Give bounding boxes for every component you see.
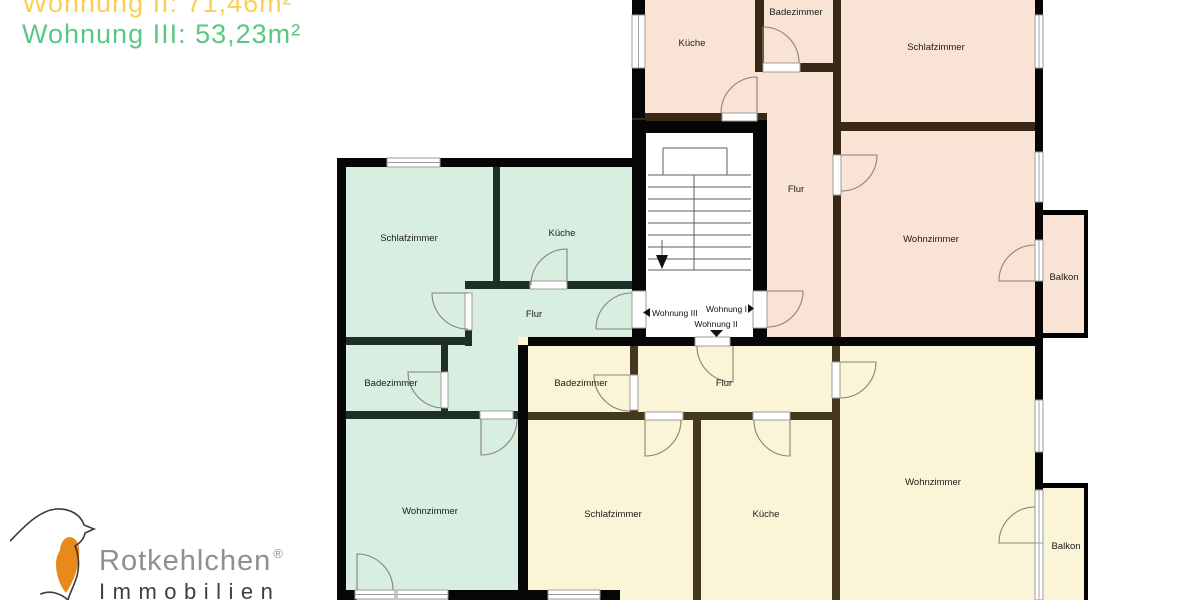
wall	[600, 590, 620, 600]
wall	[337, 158, 637, 167]
door-opening	[832, 362, 840, 398]
room-label-w3-schlafzimmer: Schlafzimmer	[380, 233, 438, 244]
room-label-w2-badezimmer: Badezimmer	[554, 378, 607, 389]
room-label-w3-wohnzimmer: Wohnzimmer	[402, 506, 458, 517]
wall	[448, 590, 548, 600]
room-label-w2-schlafzimmer: Schlafzimmer	[584, 509, 642, 520]
room-label-w2-flur: Flur	[716, 378, 732, 389]
brand-subtitle: Immobilien	[99, 579, 281, 605]
balcony-wall	[1084, 210, 1088, 338]
room-label-w2-balkon: Balkon	[1051, 541, 1080, 552]
wall	[693, 420, 701, 600]
brand-logo: Rotkehlchen® Immobilien	[10, 495, 310, 600]
door-opening	[645, 412, 683, 420]
balcony-wall	[1043, 483, 1088, 488]
door-opening	[441, 372, 448, 408]
area-wohnung-2: Wohnung II: 71,46m²	[22, 0, 301, 19]
room-label-w1-balkon: Balkon	[1049, 272, 1078, 283]
room-label-w1-schlafzimmer: Schlafzimmer	[907, 42, 965, 53]
wall	[790, 412, 835, 420]
landing-label-wohnung-2: Wohnung II	[694, 319, 737, 329]
door-opening	[480, 411, 513, 419]
apartment-3-area-upper	[337, 158, 640, 346]
wall	[683, 412, 753, 420]
wall	[441, 345, 448, 372]
brand-text: Rotkehlchen® Immobilien	[99, 545, 281, 605]
door-opening	[695, 337, 730, 346]
wall	[567, 281, 640, 289]
balcony-wall	[1043, 333, 1088, 338]
room-label-w1-flur: Flur	[788, 184, 804, 195]
room-label-w1-kueche: Küche	[679, 38, 706, 49]
room-label-w3-flur: Flur	[526, 309, 542, 320]
wall	[833, 195, 841, 337]
robin-outline	[10, 509, 94, 600]
wall	[518, 345, 528, 590]
wall	[832, 346, 840, 362]
apartment-area-list: Wohnung II: 71,46m² Wohnung III: 53,23m²	[22, 0, 301, 50]
wall	[528, 337, 1043, 346]
door-opening	[722, 113, 757, 121]
room-label-w2-wohnzimmer: Wohnzimmer	[905, 477, 961, 488]
wall	[630, 346, 638, 375]
wall	[337, 337, 472, 345]
wall	[465, 281, 530, 289]
wall	[337, 590, 357, 600]
floorplan-page: Wohnung II: 71,46m² Wohnung III: 53,23m²	[0, 0, 1200, 600]
door-opening	[763, 63, 800, 72]
landing-label-wohnung-1: Wohnung I	[706, 304, 747, 314]
area-wohnung-3: Wohnung III: 53,23m²	[22, 19, 301, 50]
wall	[493, 158, 500, 289]
room-label-w1-badezimmer: Badezimmer	[769, 7, 822, 18]
door-opening	[753, 412, 790, 420]
wall	[337, 158, 346, 598]
apartment-2-area	[518, 337, 1043, 600]
wall	[632, 121, 767, 133]
door-opening	[833, 155, 841, 195]
brand-name-row: Rotkehlchen®	[99, 545, 281, 578]
room-label-w2-kueche: Küche	[753, 509, 780, 520]
wall	[632, 113, 722, 121]
room-label-w3-kueche: Küche	[549, 228, 576, 239]
wall	[448, 411, 480, 419]
balcony-wall	[1084, 483, 1088, 600]
wall	[528, 412, 645, 420]
landing-label-wohnung-3: Wohnung III	[652, 308, 698, 318]
door-opening	[632, 291, 646, 328]
door-opening	[465, 293, 472, 330]
room-label-w3-badezimmer: Badezimmer	[364, 378, 417, 389]
wall	[800, 63, 835, 72]
wall	[337, 411, 448, 419]
balcony-wall	[1043, 210, 1088, 215]
robin-bird-icon	[10, 495, 110, 600]
wall	[833, 122, 1035, 131]
wall	[833, 0, 841, 72]
room-label-w1-wohnzimmer: Wohnzimmer	[903, 234, 959, 245]
wall	[757, 113, 767, 121]
wall	[832, 398, 840, 600]
door-opening	[630, 375, 638, 410]
door-opening	[530, 281, 567, 289]
registered-mark-icon: ®	[273, 546, 283, 561]
wall	[833, 63, 841, 155]
brand-name: Rotkehlchen	[99, 545, 271, 577]
door-opening	[753, 291, 767, 328]
floorplan: Wohnung III Wohnung I Wohnung II Küche B…	[330, 0, 1090, 600]
